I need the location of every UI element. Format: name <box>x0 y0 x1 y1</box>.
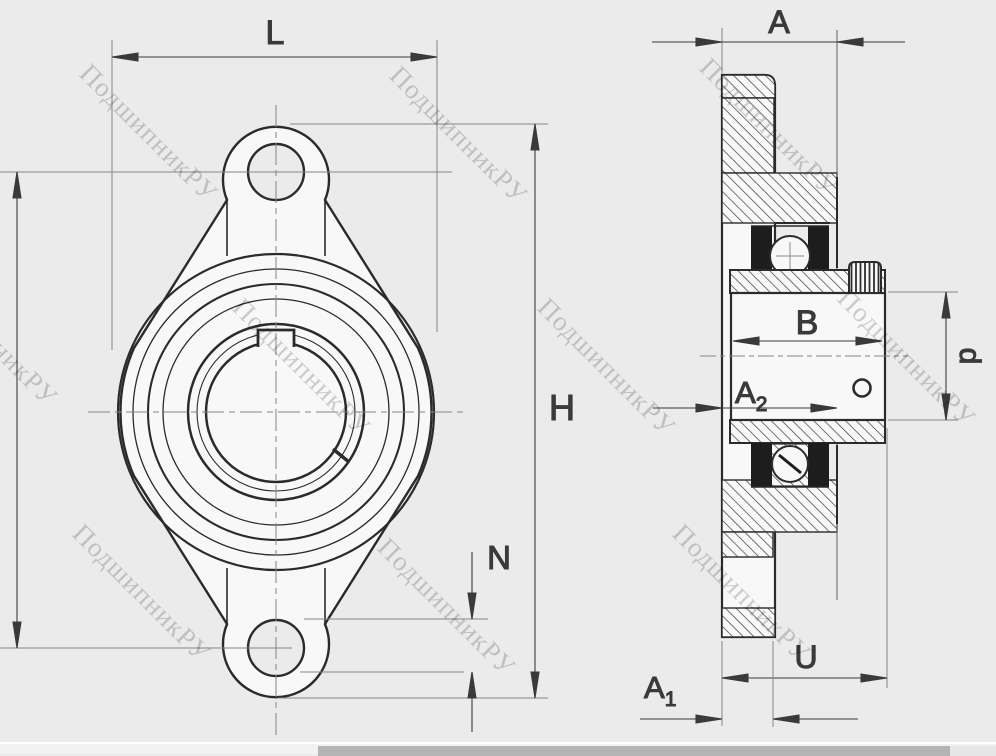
set-screw-side <box>854 380 871 397</box>
horizontal-scrollbar[interactable] <box>0 742 996 754</box>
drawing-canvas: L H N A B <box>0 0 996 742</box>
bearing-technical-drawing: L H N A B <box>0 0 996 742</box>
dim-label-A1: A <box>644 670 665 705</box>
dim-label-H: H <box>549 387 575 428</box>
svg-text:A1: A1 <box>644 670 676 711</box>
bearing-bottom-section <box>751 443 829 487</box>
dim-label-L: L <box>266 14 285 52</box>
front-view <box>0 105 468 736</box>
page: { "app": { "type": "technical-drawing", … <box>0 0 996 754</box>
dim-label-A: A <box>768 4 790 40</box>
inner-ring-collar-bottom <box>730 420 885 443</box>
dimension-A1: A1 <box>640 641 858 727</box>
dim-label-N: N <box>487 539 511 576</box>
grease-fitting <box>849 262 881 293</box>
bearing-top-section <box>751 226 829 276</box>
scrollbar-thumb[interactable] <box>318 746 950 756</box>
dim-label-d: d <box>953 348 986 365</box>
dim-label-U: U <box>794 639 817 675</box>
dimension-bolt-spacing <box>13 172 21 648</box>
dimension-d: d <box>888 292 986 420</box>
dim-label-B: B <box>796 304 819 342</box>
scrollbar-track-tail[interactable] <box>950 746 996 756</box>
dim-label-A2: A <box>735 375 756 410</box>
dimension-A: A <box>652 4 905 73</box>
